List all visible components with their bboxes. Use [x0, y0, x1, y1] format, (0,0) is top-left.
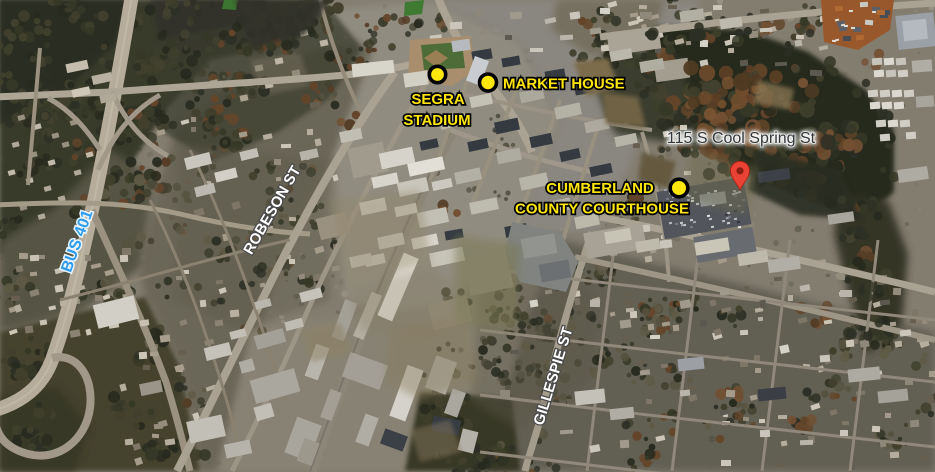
svg-text:SEGRA: SEGRA: [411, 91, 465, 108]
svg-text:STADIUM: STADIUM: [403, 112, 470, 129]
svg-text:CUMBERLAND: CUMBERLAND: [546, 180, 654, 197]
svg-text:MARKET HOUSE: MARKET HOUSE: [503, 76, 625, 93]
svg-text:115 S Cool Spring St: 115 S Cool Spring St: [667, 130, 816, 147]
svg-text:COUNTY COURTHOUSE: COUNTY COURTHOUSE: [515, 201, 689, 218]
